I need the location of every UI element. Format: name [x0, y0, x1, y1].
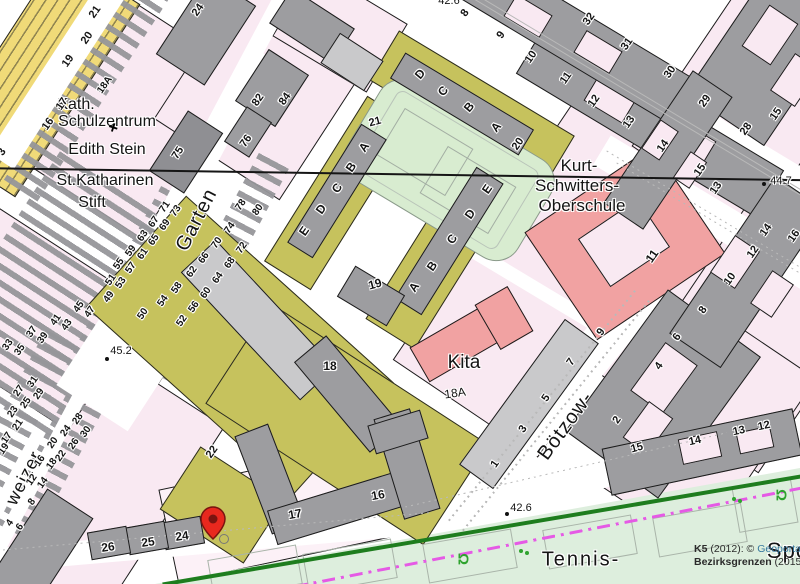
elevation-label: 44.7	[770, 175, 791, 187]
elevation-label: 42.6	[510, 502, 531, 514]
label-oberschule: Oberschule	[539, 196, 626, 216]
copyright-line-1: K5 (2012): © Geoporta	[694, 543, 800, 556]
label-kita: Kita	[448, 352, 481, 374]
elevation-label: 45.2	[110, 345, 131, 357]
shrub-dot-icon	[519, 549, 523, 553]
tree-symbol-icon: Ω	[773, 489, 790, 501]
location-pin-marker[interactable]	[200, 506, 226, 540]
house-number: 25	[140, 534, 155, 550]
label-st-katharinen: St.Katharinen	[57, 172, 154, 190]
label-edith-stein: Edith Stein	[68, 141, 145, 159]
elevation-point-dot	[105, 357, 109, 361]
elevation-point-dot	[505, 512, 509, 516]
shrub-dot-icon	[525, 551, 529, 555]
house-number: 16	[370, 487, 386, 503]
label-kurt: Kurt-	[561, 156, 598, 176]
house-number: 13	[732, 424, 746, 438]
label-18a-kita: 18A	[443, 385, 466, 402]
map-canvas[interactable]: Kath.SchulzentrumEdith SteinSt.Katharine…	[0, 0, 800, 584]
house-number: 14	[688, 434, 702, 448]
copyright-notice: K5 (2012): © Geoporta Bezirksgrenzen (20…	[694, 543, 800, 569]
house-number: 17	[287, 506, 303, 522]
house-number: 12	[757, 419, 771, 433]
shrub-dot-icon	[738, 499, 742, 503]
tree-symbol-icon: Ω	[455, 553, 472, 565]
house-number: 26	[100, 539, 115, 555]
copyright-line-2: Bezirksgrenzen (2015)	[694, 556, 800, 569]
house-number: 24	[174, 528, 189, 544]
elevation-label: 42.6	[438, 0, 459, 7]
copyright-source-link[interactable]: Geoporta	[757, 543, 800, 555]
label-tennis: Tennis-	[542, 549, 620, 572]
elevation-point-dot	[762, 182, 766, 186]
house-number: 18	[323, 359, 336, 373]
label-schwitters: Schwitters-	[535, 176, 619, 196]
shrub-dot-icon	[732, 497, 736, 501]
label-stift: Stift	[78, 194, 106, 212]
